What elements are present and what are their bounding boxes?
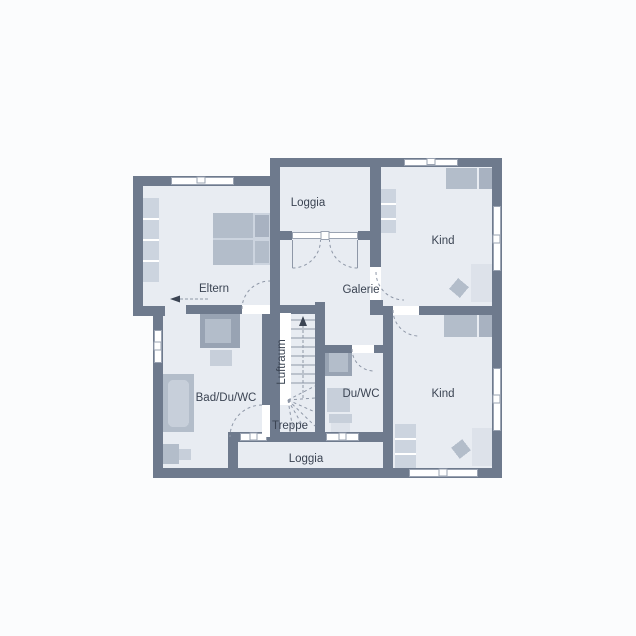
room-label-kind-top: Kind bbox=[431, 235, 454, 247]
wall-loggia-right bbox=[370, 158, 381, 240]
wall-kind-left-stub bbox=[370, 240, 381, 267]
wall-kind-divider-west bbox=[370, 306, 393, 315]
wall-eltern-bottom bbox=[186, 305, 242, 314]
desk-icon bbox=[471, 264, 492, 302]
bed-icon bbox=[446, 168, 492, 189]
wall-kind-divider-east bbox=[419, 306, 502, 315]
wall-left-upper bbox=[133, 176, 143, 316]
window bbox=[493, 369, 501, 431]
shower-icon bbox=[200, 314, 240, 348]
wall-frenchdoor-stub bbox=[280, 231, 292, 240]
window bbox=[410, 469, 478, 477]
wall-duwc-top bbox=[325, 345, 352, 353]
floor-plan: Eltern Loggia Kind Galerie Luftraum Trep… bbox=[0, 0, 636, 636]
room-label-treppe: Treppe bbox=[272, 420, 308, 432]
room-label-duwc: Du/WC bbox=[342, 388, 379, 400]
room-label-loggia-top: Loggia bbox=[291, 197, 326, 209]
wall-kind-bottom-left bbox=[383, 315, 393, 468]
double-bed-icon bbox=[213, 213, 271, 265]
wall-frenchdoor-stub bbox=[358, 231, 370, 240]
desk-icon bbox=[472, 428, 492, 466]
room-label-loggia-bottom: Loggia bbox=[289, 453, 324, 465]
wardrobe-icon bbox=[381, 189, 396, 233]
wardrobe-icon bbox=[395, 424, 416, 468]
bed-icon bbox=[444, 315, 492, 337]
floor-plan-drawing: Eltern Loggia Kind Galerie Luftraum Trep… bbox=[0, 0, 636, 636]
wall-left-jog bbox=[133, 306, 165, 316]
wall-loggia-top bbox=[270, 158, 381, 167]
window bbox=[172, 177, 234, 185]
window bbox=[154, 331, 162, 363]
wall-duwc-top-stub bbox=[374, 345, 383, 353]
room-label-eltern: Eltern bbox=[199, 283, 229, 295]
wardrobe-icon bbox=[143, 198, 159, 282]
loggia-door bbox=[327, 433, 359, 441]
wall-eltern-right bbox=[270, 158, 280, 305]
washbasin-icon bbox=[210, 350, 232, 366]
bathtub-icon bbox=[163, 374, 194, 432]
room-label-bad: Bad/Du/WC bbox=[196, 392, 257, 404]
window bbox=[493, 207, 501, 271]
wall-stair-right bbox=[315, 302, 325, 432]
room-label-kind-bottom: Kind bbox=[431, 388, 454, 400]
room-label-luftraum: Luftraum bbox=[276, 339, 288, 384]
room-label-galerie: Galerie bbox=[342, 284, 379, 296]
window bbox=[405, 159, 458, 166]
wall-loggia-bottom-left bbox=[228, 432, 238, 478]
